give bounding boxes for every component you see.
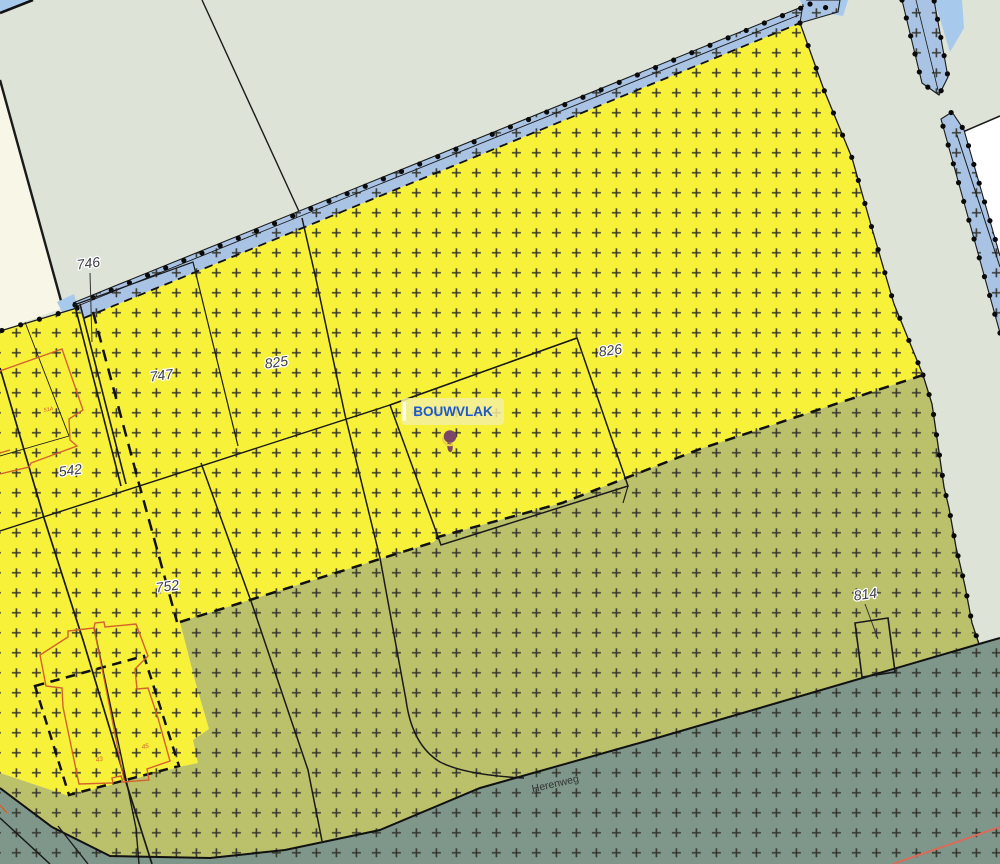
- svg-text:747: 747: [149, 365, 176, 384]
- svg-text:542: 542: [58, 460, 84, 479]
- svg-text:752: 752: [155, 576, 181, 595]
- svg-text:825: 825: [264, 352, 290, 371]
- svg-text:BOUWVLAK: BOUWVLAK: [413, 404, 493, 419]
- svg-text:826: 826: [598, 340, 624, 359]
- svg-text:746: 746: [76, 253, 102, 272]
- svg-text:814: 814: [853, 584, 879, 603]
